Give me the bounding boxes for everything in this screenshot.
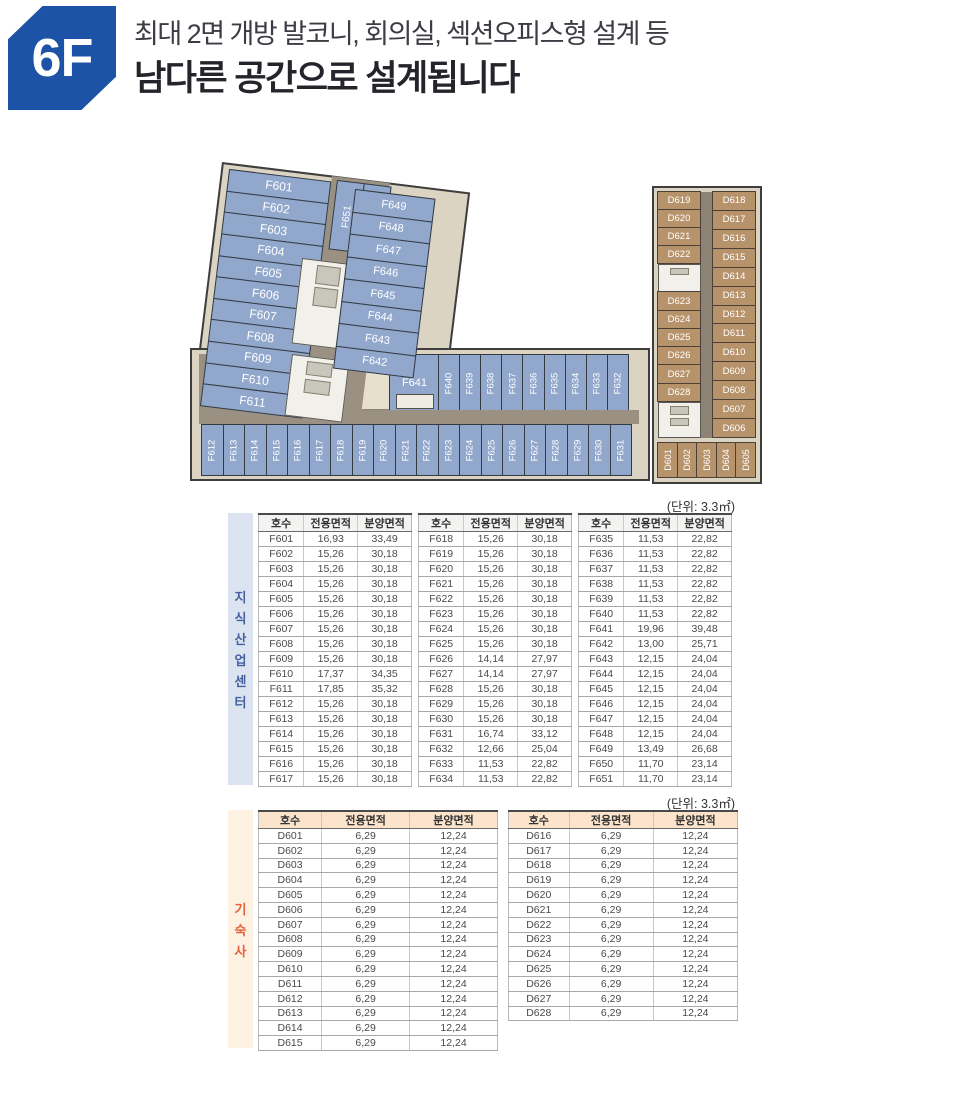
- table-cell: 12,24: [410, 1021, 498, 1036]
- table-row: D6046,2912,24: [259, 873, 498, 888]
- table-cell: 12,24: [410, 976, 498, 991]
- table-cell: 15,26: [304, 622, 358, 637]
- floorplan-unit-F635: F635: [544, 354, 566, 412]
- table-row: F62015,2630,18: [419, 562, 572, 577]
- table-row: D6276,2912,24: [509, 991, 738, 1006]
- floorplan-unit-F615: F615: [266, 424, 289, 476]
- table-row: F63411,5322,82: [419, 772, 572, 787]
- side-label-char: 지: [235, 587, 247, 606]
- unit-label: D611: [723, 328, 745, 339]
- table-row: F64412,1524,04: [579, 667, 732, 682]
- table-cell: 6,29: [322, 932, 410, 947]
- unit-label: D610: [723, 347, 746, 358]
- table-cell: 12,15: [624, 727, 678, 742]
- column-header: 호수: [259, 811, 322, 829]
- table-row: F61215,2630,18: [259, 697, 412, 712]
- floorplan-unit-D604: D604: [716, 442, 737, 478]
- table-row: D6166,2912,24: [509, 829, 738, 844]
- table-cell: D614: [259, 1021, 322, 1036]
- floorplan-unit-D626: D626: [657, 346, 701, 365]
- floorplan-unit-F633: F633: [586, 354, 608, 412]
- table-cell: F627: [419, 667, 464, 682]
- unit-label: F603: [259, 221, 288, 238]
- restroom-icon: [304, 379, 331, 396]
- table-group-f635-f651: 호수전용면적분양면적F63511,5322,82F63611,5322,82F6…: [578, 513, 732, 787]
- column-header: 전용면적: [304, 514, 358, 532]
- unit-label: D605: [741, 449, 751, 471]
- table-row: F62614,1427,97: [419, 652, 572, 667]
- unit-label: F608: [246, 328, 275, 345]
- table-row: D6196,2912,24: [509, 873, 738, 888]
- table-cell: 35,32: [358, 682, 412, 697]
- column-header: 전용면적: [464, 514, 518, 532]
- table-row: F65011,7023,14: [579, 757, 732, 772]
- table-cell: 17,37: [304, 667, 358, 682]
- table-cell: F607: [259, 622, 304, 637]
- table-cell: 22,82: [678, 577, 732, 592]
- table-group-d601-d615: 호수전용면적분양면적D6016,2912,24D6026,2912,24D603…: [258, 810, 498, 1051]
- unit-label: F646: [372, 265, 398, 280]
- table-cell: F602: [259, 547, 304, 562]
- meeting-room: [396, 394, 434, 409]
- table-cell: 6,29: [569, 917, 653, 932]
- floorplan-unit-F613: F613: [223, 424, 246, 476]
- unit-label: F619: [357, 439, 368, 461]
- table-cell: 39,48: [678, 622, 732, 637]
- table-header-row: 호수전용면적분양면적: [579, 514, 732, 532]
- table-cell: 12,24: [410, 843, 498, 858]
- unit-label: F627: [529, 439, 540, 461]
- unit-label: F612: [207, 439, 218, 461]
- table-cell: 14,14: [464, 667, 518, 682]
- table-row: D6136,2912,24: [259, 1006, 498, 1021]
- table-cell: 30,18: [358, 547, 412, 562]
- table-cell: 30,18: [358, 742, 412, 757]
- table-cell: 6,29: [569, 858, 653, 873]
- table-cell: D601: [259, 829, 322, 844]
- table-row: F64213,0025,71: [579, 637, 732, 652]
- table-cell: F645: [579, 682, 624, 697]
- unit-label: D624: [668, 314, 691, 325]
- floorplan-unit-D605: D605: [735, 442, 756, 478]
- table-row: D6096,2912,24: [259, 947, 498, 962]
- unit-label: D615: [723, 252, 746, 263]
- table-row: F62714,1427,97: [419, 667, 572, 682]
- floorplan-unit-F617: F617: [309, 424, 332, 476]
- d-core-block-1: [658, 264, 701, 292]
- unit-label: D623: [668, 296, 691, 307]
- table-cell: F636: [579, 547, 624, 562]
- table-cell: D623: [509, 932, 570, 947]
- table-cell: 12,66: [464, 742, 518, 757]
- table-cell: 19,96: [624, 622, 678, 637]
- side-label-char: 기: [235, 899, 247, 918]
- table-row: F64812,1524,04: [579, 727, 732, 742]
- unit-label: D603: [701, 449, 711, 471]
- table-row: F63711,5322,82: [579, 562, 732, 577]
- table-cell: 12,24: [653, 888, 737, 903]
- floorplan-unit-F612: F612: [201, 424, 224, 476]
- table-cell: 15,26: [304, 772, 358, 787]
- table-cell: 15,26: [304, 652, 358, 667]
- unit-label: F637: [507, 372, 518, 394]
- column-header: 분양면적: [653, 811, 737, 829]
- table-row: F63511,5322,82: [579, 532, 732, 547]
- unit-col-d619-d622: D619D620D621D622: [658, 192, 701, 264]
- table-cell: F611: [259, 682, 304, 697]
- table-cell: 30,18: [358, 697, 412, 712]
- floorplan-unit-F636: F636: [522, 354, 544, 412]
- floorplan-unit-F622: F622: [416, 424, 439, 476]
- table-cell: F626: [419, 652, 464, 667]
- table-side-label-dorm: 기숙사: [228, 810, 253, 1048]
- table-cell: 15,26: [464, 682, 518, 697]
- table-cell: 12,24: [410, 888, 498, 903]
- table-row: D6216,2912,24: [509, 902, 738, 917]
- table-cell: 12,24: [410, 1036, 498, 1051]
- unit-label: D626: [668, 350, 691, 361]
- table-row: F62815,2630,18: [419, 682, 572, 697]
- column-header: 분양면적: [358, 514, 412, 532]
- unit-label: D601: [662, 449, 672, 471]
- table-cell: F620: [419, 562, 464, 577]
- d-core-block-2: [658, 402, 701, 438]
- table-row: D6116,2912,24: [259, 976, 498, 991]
- table-header-row: 호수전용면적분양면적: [509, 811, 738, 829]
- table-cell: F609: [259, 652, 304, 667]
- floorplan-unit-F638: F638: [480, 354, 502, 412]
- floorplan-unit-F623: F623: [438, 424, 461, 476]
- floorplan-unit-F618: F618: [330, 424, 353, 476]
- unit-label: D613: [723, 290, 746, 301]
- table-cell: 15,26: [464, 712, 518, 727]
- unit-label: F640: [444, 372, 455, 394]
- unit-label: D614: [723, 271, 746, 282]
- table-cell: 6,29: [322, 888, 410, 903]
- table-cell: F629: [419, 697, 464, 712]
- floorplan-unit-D620: D620: [657, 209, 701, 228]
- unit-label: F616: [293, 439, 304, 461]
- floorplan-unit-F624: F624: [459, 424, 482, 476]
- column-header: 분양면적: [678, 514, 732, 532]
- table-cell: 12,15: [624, 652, 678, 667]
- table-row: F64913,4926,68: [579, 742, 732, 757]
- table-cell: D617: [509, 843, 570, 858]
- table-cell: 12,15: [624, 667, 678, 682]
- table-cell: 15,26: [304, 727, 358, 742]
- unit-label: F620: [379, 439, 390, 461]
- unit-label: F626: [508, 439, 519, 461]
- table-cell: D603: [259, 858, 322, 873]
- column-header: 전용면적: [322, 811, 410, 829]
- table-cell: 12,24: [410, 829, 498, 844]
- table-cell: 25,71: [678, 637, 732, 652]
- table-row: F65111,7023,14: [579, 772, 732, 787]
- unit-label: F632: [612, 372, 623, 394]
- table-cell: F604: [259, 577, 304, 592]
- table-cell: D611: [259, 976, 322, 991]
- table-cell: D619: [509, 873, 570, 888]
- table-side-label-knowledge: 지식산업센터: [228, 513, 253, 785]
- table-row: F60715,2630,18: [259, 622, 412, 637]
- table-cell: F630: [419, 712, 464, 727]
- table-row: F62915,2630,18: [419, 697, 572, 712]
- floorplan-unit-D611: D611: [712, 323, 756, 343]
- table-row: F60415,2630,18: [259, 577, 412, 592]
- table-cell: 30,18: [358, 652, 412, 667]
- table-row: F60815,2630,18: [259, 637, 412, 652]
- floorplan-unit-D625: D625: [657, 328, 701, 347]
- table-cell: 30,18: [518, 682, 572, 697]
- floorplan-unit-D609: D609: [712, 361, 756, 381]
- table-row: F61117,8535,32: [259, 682, 412, 697]
- table-cell: F622: [419, 592, 464, 607]
- table-cell: 30,18: [518, 622, 572, 637]
- table-cell: 11,53: [624, 607, 678, 622]
- table-cell: F612: [259, 697, 304, 712]
- table-cell: D609: [259, 947, 322, 962]
- table-row: F62315,2630,18: [419, 607, 572, 622]
- d-left-column: D619D620D621D622 D623D624D625D626D627D62…: [658, 192, 701, 438]
- unit-label: F635: [549, 372, 560, 394]
- table-cell: 17,85: [304, 682, 358, 697]
- table-cell: 12,24: [410, 917, 498, 932]
- floorplan-unit-D627: D627: [657, 364, 701, 383]
- table-cell: 6,29: [322, 1006, 410, 1021]
- knowledge-area-table: 호수전용면적분양면적F60116,9333,49F60215,2630,18F6…: [258, 513, 732, 787]
- table-row: F62115,2630,18: [419, 577, 572, 592]
- floorplan-unit-D614: D614: [712, 267, 756, 287]
- unit-label: D617: [723, 214, 746, 225]
- table-cell: 6,29: [322, 962, 410, 977]
- floorplan-unit-D610: D610: [712, 342, 756, 362]
- table-group-d616-d628: 호수전용면적분양면적D6166,2912,24D6176,2912,24D618…: [508, 810, 738, 1051]
- unit-label: D621: [668, 231, 691, 242]
- table-row: D6056,2912,24: [259, 888, 498, 903]
- floorplan-unit-F639: F639: [459, 354, 481, 412]
- table-row: F64119,9639,48: [579, 622, 732, 637]
- unit-label: F636: [528, 372, 539, 394]
- unit-label: D606: [723, 423, 746, 434]
- table-row: D6286,2912,24: [509, 1006, 738, 1021]
- unit-col-d618-d606: D618D617D616D615D614D613D612D611D610D609…: [713, 192, 756, 438]
- table-cell: 6,29: [322, 976, 410, 991]
- table-cell: 24,04: [678, 667, 732, 682]
- table-cell: 6,29: [322, 829, 410, 844]
- table-cell: D606: [259, 902, 322, 917]
- floorplan-unit-D623: D623: [657, 291, 701, 310]
- unit-label: F605: [254, 264, 283, 281]
- table-cell: 12,15: [624, 682, 678, 697]
- table-cell: F623: [419, 607, 464, 622]
- unit-label: F648: [378, 220, 404, 235]
- table-cell: 12,24: [410, 873, 498, 888]
- table-cell: F621: [419, 577, 464, 592]
- table-cell: 11,53: [464, 772, 518, 787]
- table-row: D6036,2912,24: [259, 858, 498, 873]
- unit-label: D612: [723, 309, 746, 320]
- table-cell: F637: [579, 562, 624, 577]
- unit-label: D619: [668, 195, 691, 206]
- table-cell: 6,29: [322, 991, 410, 1006]
- unit-label: F607: [249, 307, 278, 324]
- table-row: F60116,9333,49: [259, 532, 412, 547]
- table-cell: D607: [259, 917, 322, 932]
- column-header: 전용면적: [569, 811, 653, 829]
- table-cell: D628: [509, 1006, 570, 1021]
- unit-label: D627: [668, 369, 691, 380]
- table-cell: F633: [419, 757, 464, 772]
- table-cell: 27,97: [518, 652, 572, 667]
- table-cell: 12,24: [653, 932, 737, 947]
- table-cell: 12,24: [410, 962, 498, 977]
- floorplan-unit-F628: F628: [545, 424, 568, 476]
- table-row: F64712,1524,04: [579, 712, 732, 727]
- table-cell: 16,93: [304, 532, 358, 547]
- floorplan-unit-F614: F614: [244, 424, 267, 476]
- stairs-icon: [312, 287, 339, 309]
- table-cell: 30,18: [518, 592, 572, 607]
- table-row: F64011,5322,82: [579, 607, 732, 622]
- table-row: D6076,2912,24: [259, 917, 498, 932]
- unit-label: F631: [615, 439, 626, 461]
- side-label-char: 식: [235, 608, 247, 627]
- unit-label: D602: [682, 449, 692, 471]
- table-cell: 11,53: [624, 532, 678, 547]
- floorplan-unit-D624: D624: [657, 310, 701, 329]
- table-cell: D608: [259, 932, 322, 947]
- table-cell: 12,24: [653, 991, 737, 1006]
- table-cell: D616: [509, 829, 570, 844]
- table-cell: 24,04: [678, 682, 732, 697]
- table-row: F63311,5322,82: [419, 757, 572, 772]
- table-row: F60915,2630,18: [259, 652, 412, 667]
- table-cell: 15,26: [304, 592, 358, 607]
- table-cell: 12,15: [624, 697, 678, 712]
- table-cell: F632: [419, 742, 464, 757]
- column-header: 호수: [509, 811, 570, 829]
- table-cell: 6,29: [322, 1036, 410, 1051]
- table-cell: 6,29: [322, 1021, 410, 1036]
- table-row: F64512,1524,04: [579, 682, 732, 697]
- table-cell: 6,29: [322, 917, 410, 932]
- table-cell: F648: [579, 727, 624, 742]
- table-row: F64312,1524,04: [579, 652, 732, 667]
- table-cell: F614: [259, 727, 304, 742]
- unit-label: F645: [370, 287, 396, 302]
- stairs-icon: [670, 418, 689, 427]
- unit-label: F628: [551, 439, 562, 461]
- table-cell: 6,29: [322, 947, 410, 962]
- floorplan-unit-F634: F634: [565, 354, 587, 412]
- table-cell: 15,26: [464, 637, 518, 652]
- unit-label: F609: [243, 350, 272, 367]
- floorplan-unit-D622: D622: [657, 245, 701, 264]
- unit-label: F633: [591, 372, 602, 394]
- table-cell: F643: [579, 652, 624, 667]
- unit-label: F625: [486, 439, 497, 461]
- table-cell: 15,26: [464, 607, 518, 622]
- table-cell: 12,24: [653, 843, 737, 858]
- table-row: F61017,3734,35: [259, 667, 412, 682]
- table-cell: 24,04: [678, 727, 732, 742]
- unit-label: F606: [251, 285, 280, 302]
- table-row: D6026,2912,24: [259, 843, 498, 858]
- floorplan-unit-D601: D601: [657, 442, 678, 478]
- floorplan-d-building: D619D620D621D622 D623D624D625D626D627D62…: [652, 186, 762, 484]
- table-cell: 33,49: [358, 532, 412, 547]
- table-cell: 12,24: [410, 902, 498, 917]
- unit-label: F638: [486, 372, 497, 394]
- column-header: 분양면적: [410, 811, 498, 829]
- table-cell: 6,29: [322, 843, 410, 858]
- table-cell: 25,04: [518, 742, 572, 757]
- unit-row-f612-f631: F612F613F614F615F616F617F618F619F620F621…: [202, 424, 632, 476]
- unit-label: F613: [228, 439, 239, 461]
- unit-label: F630: [594, 439, 605, 461]
- table-cell: 23,14: [678, 772, 732, 787]
- table-cell: F605: [259, 592, 304, 607]
- table-cell: 27,97: [518, 667, 572, 682]
- table-header-row: 호수전용면적분양면적: [259, 514, 412, 532]
- table-row: D6176,2912,24: [509, 843, 738, 858]
- table-cell: 30,18: [518, 562, 572, 577]
- table-row: D6106,2912,24: [259, 962, 498, 977]
- table-cell: D618: [509, 858, 570, 873]
- table-row: F63911,5322,82: [579, 592, 732, 607]
- table-cell: D604: [259, 873, 322, 888]
- unit-label: D616: [723, 233, 746, 244]
- table-cell: 15,26: [304, 742, 358, 757]
- table-cell: 15,26: [304, 577, 358, 592]
- table-row: F63212,6625,04: [419, 742, 572, 757]
- table-cell: D622: [509, 917, 570, 932]
- floorplan-unit-D607: D607: [712, 399, 756, 419]
- table-row: F62215,2630,18: [419, 592, 572, 607]
- table-cell: F608: [259, 637, 304, 652]
- table-cell: 12,24: [653, 1006, 737, 1021]
- table-cell: 12,24: [653, 873, 737, 888]
- unit-label: F624: [465, 439, 476, 461]
- table-cell: 12,24: [410, 858, 498, 873]
- table-cell: 30,18: [358, 772, 412, 787]
- table-row: F64612,1524,04: [579, 697, 732, 712]
- table-cell: 6,29: [322, 902, 410, 917]
- floorplan-unit-F640: F640: [438, 354, 460, 412]
- table-cell: F647: [579, 712, 624, 727]
- floorplan-unit-D619: D619: [657, 191, 701, 210]
- floorplan-unit-D608: D608: [712, 380, 756, 400]
- table-cell: 15,26: [464, 532, 518, 547]
- floorplan-unit-D617: D617: [712, 210, 756, 230]
- table-row: F60515,2630,18: [259, 592, 412, 607]
- page-title: 남다른 공간으로 설계됩니다: [134, 50, 519, 101]
- elevator-icon: [670, 406, 689, 415]
- table-cell: 30,18: [518, 532, 572, 547]
- table-cell: 30,18: [358, 592, 412, 607]
- table-cell: F649: [579, 742, 624, 757]
- table-cell: F624: [419, 622, 464, 637]
- table-row: F61915,2630,18: [419, 547, 572, 562]
- table-cell: 6,29: [322, 873, 410, 888]
- table-cell: 23,14: [678, 757, 732, 772]
- table-cell: 30,18: [358, 757, 412, 772]
- table-cell: 30,18: [358, 577, 412, 592]
- table-cell: F639: [579, 592, 624, 607]
- side-label-char: 숙: [235, 920, 247, 939]
- table-cell: 12,24: [653, 858, 737, 873]
- table-row: F61815,2630,18: [419, 532, 572, 547]
